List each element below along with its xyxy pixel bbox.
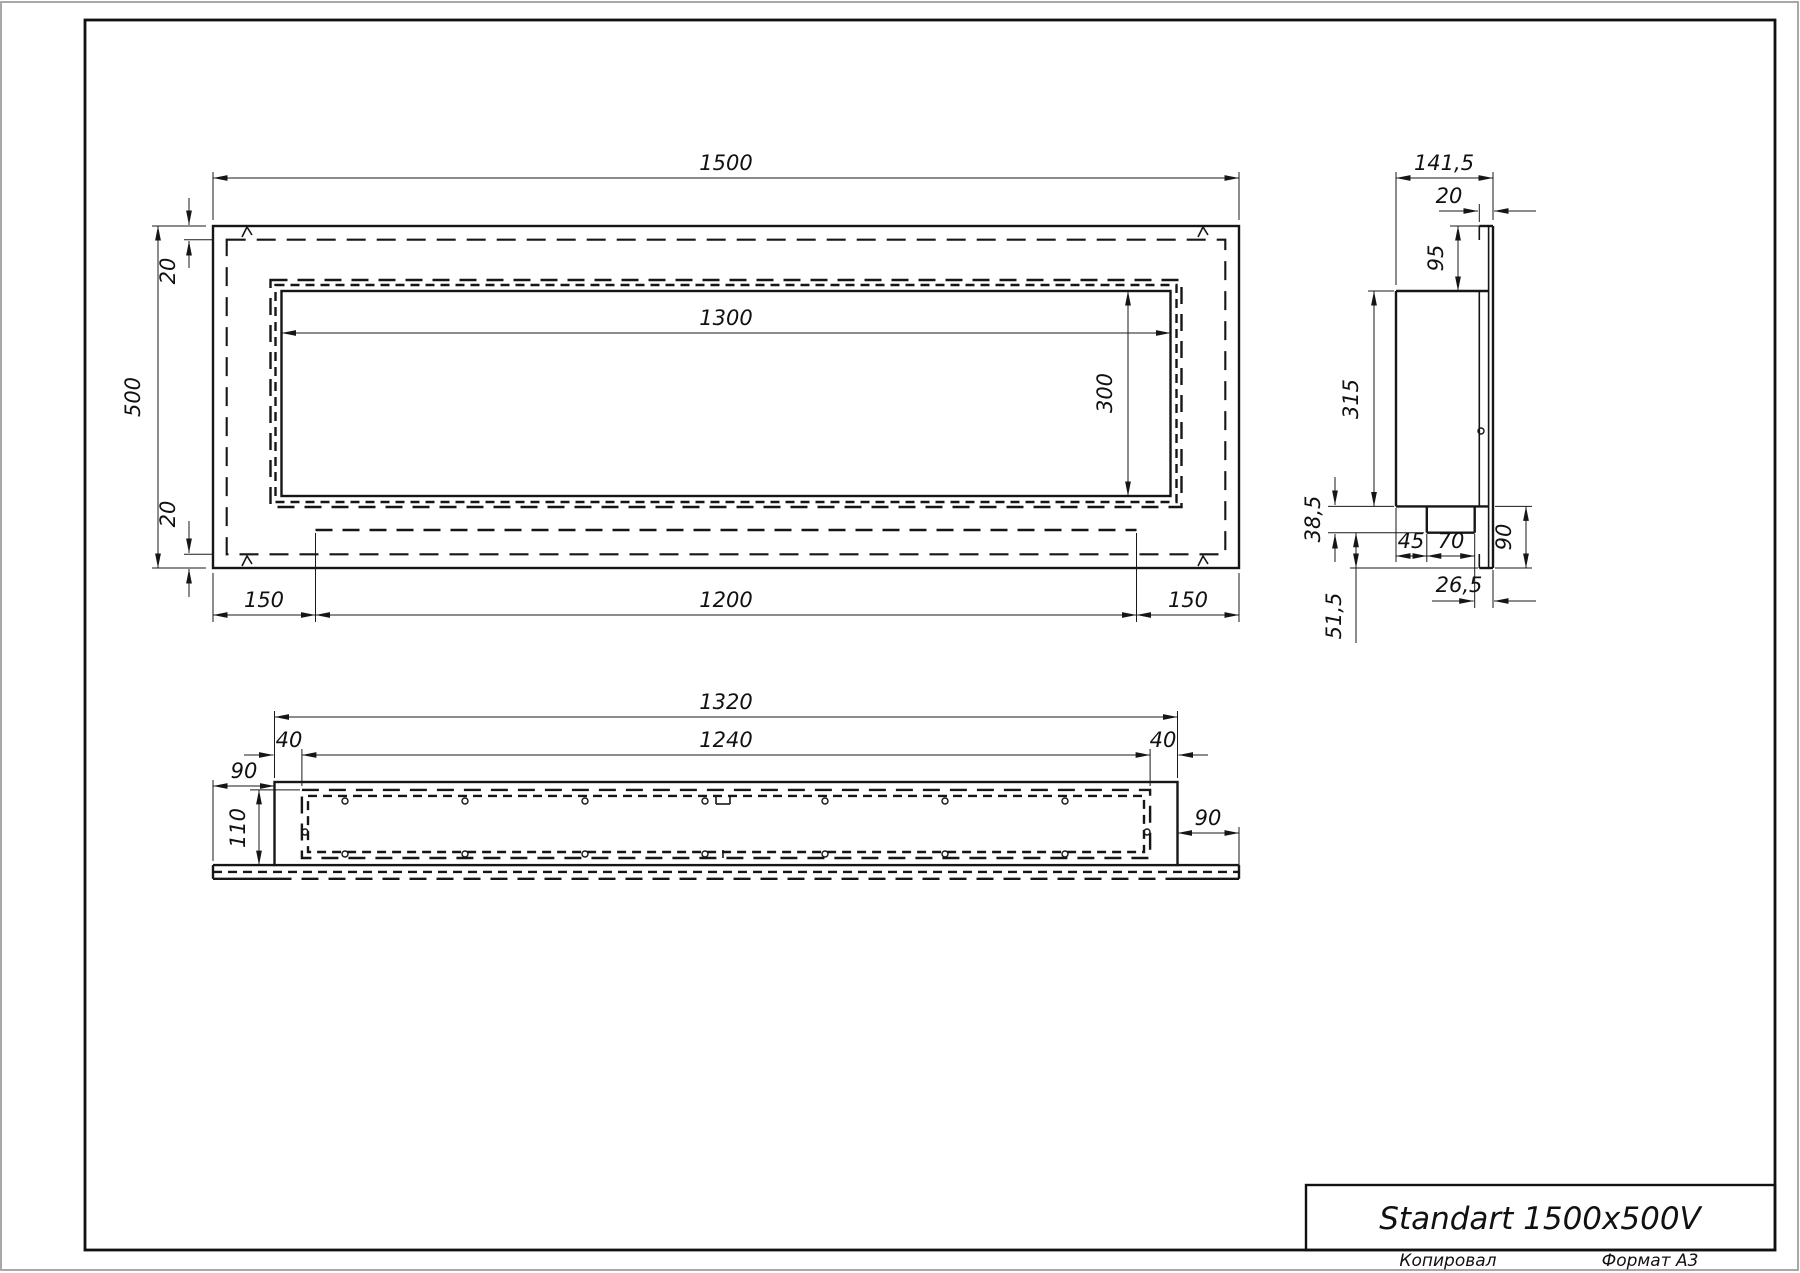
dim-margin-left: 150	[244, 588, 284, 612]
dim-flange-top: 20	[156, 258, 180, 285]
front-view-dimension-labels: 1500 500 20 20 1300 300 150 1200 150	[121, 151, 1208, 612]
dim-flange-depth: 20	[1436, 184, 1463, 208]
dim-opening-height: 300	[1093, 373, 1117, 413]
dim-tray-depth: 38,5	[1301, 496, 1325, 543]
dim-tray-width: 70	[1438, 529, 1465, 553]
dim-flange-bottom: 20	[156, 501, 180, 528]
front-outer-frame	[213, 226, 1239, 568]
dim-front-overhang: 90	[1492, 524, 1516, 551]
bottom-view-dimension-labels: 1320 1240 40 40 90 90 110	[226, 690, 1221, 848]
seam-marks	[242, 227, 1208, 566]
front-view: 1500 500 20 20 1300 300 150 1200 150	[121, 151, 1239, 622]
dim-body-length: 1320	[699, 690, 752, 714]
bottom-centre-notch	[716, 796, 730, 858]
side-view-dimension-labels: 141,5 20 95 315 38,5 45 70 90 26,5 51,5	[1301, 151, 1516, 639]
copied-label: Копировал	[1399, 1251, 1496, 1271]
bottom-mounting-holes	[302, 798, 1150, 857]
drawing-canvas: Standart 1500x500V Копировал Формат A3	[0, 0, 1800, 1273]
dim-overhang-right: 90	[1195, 806, 1222, 830]
dim-top-offset: 95	[1424, 245, 1448, 272]
bottom-inner-hidden-1	[302, 790, 1150, 858]
drawing-sheet: Standart 1500x500V Копировал Формат A3	[0, 0, 1800, 1273]
dim-slot-width: 1200	[699, 588, 752, 612]
dim-end-wall-left: 40	[276, 728, 303, 752]
dim-overall-width: 1500	[699, 151, 752, 175]
dim-overall-depth: 141,5	[1414, 151, 1474, 175]
dim-bottom-gap: 51,5	[1322, 593, 1346, 640]
drawing-title: Standart 1500x500V	[1379, 1201, 1703, 1237]
dim-margin-right: 150	[1168, 588, 1208, 612]
dim-body-height: 315	[1339, 379, 1363, 419]
bottom-view: 1320 1240 40 40 90 90 110	[213, 690, 1239, 879]
dim-tray-back-offset: 45	[1398, 529, 1425, 553]
format-label: Формат A3	[1602, 1251, 1699, 1271]
dim-overall-height: 500	[121, 377, 145, 417]
dim-end-wall-right: 40	[1150, 728, 1177, 752]
dim-tray-front-gap: 26,5	[1436, 573, 1483, 597]
dim-overhang-left: 90	[231, 759, 258, 783]
bottom-fascia-strip	[213, 865, 1239, 879]
page-edge-border	[1, 2, 1798, 1270]
side-view: 141,5 20 95 315 38,5 45 70 90 26,5 51,5	[1301, 151, 1536, 643]
dim-inner-length: 1240	[699, 728, 752, 752]
sheet-frame: Standart 1500x500V Копировал Формат A3	[85, 20, 1775, 1271]
dim-opening-width: 1300	[699, 306, 752, 330]
dim-depth: 110	[226, 808, 250, 848]
